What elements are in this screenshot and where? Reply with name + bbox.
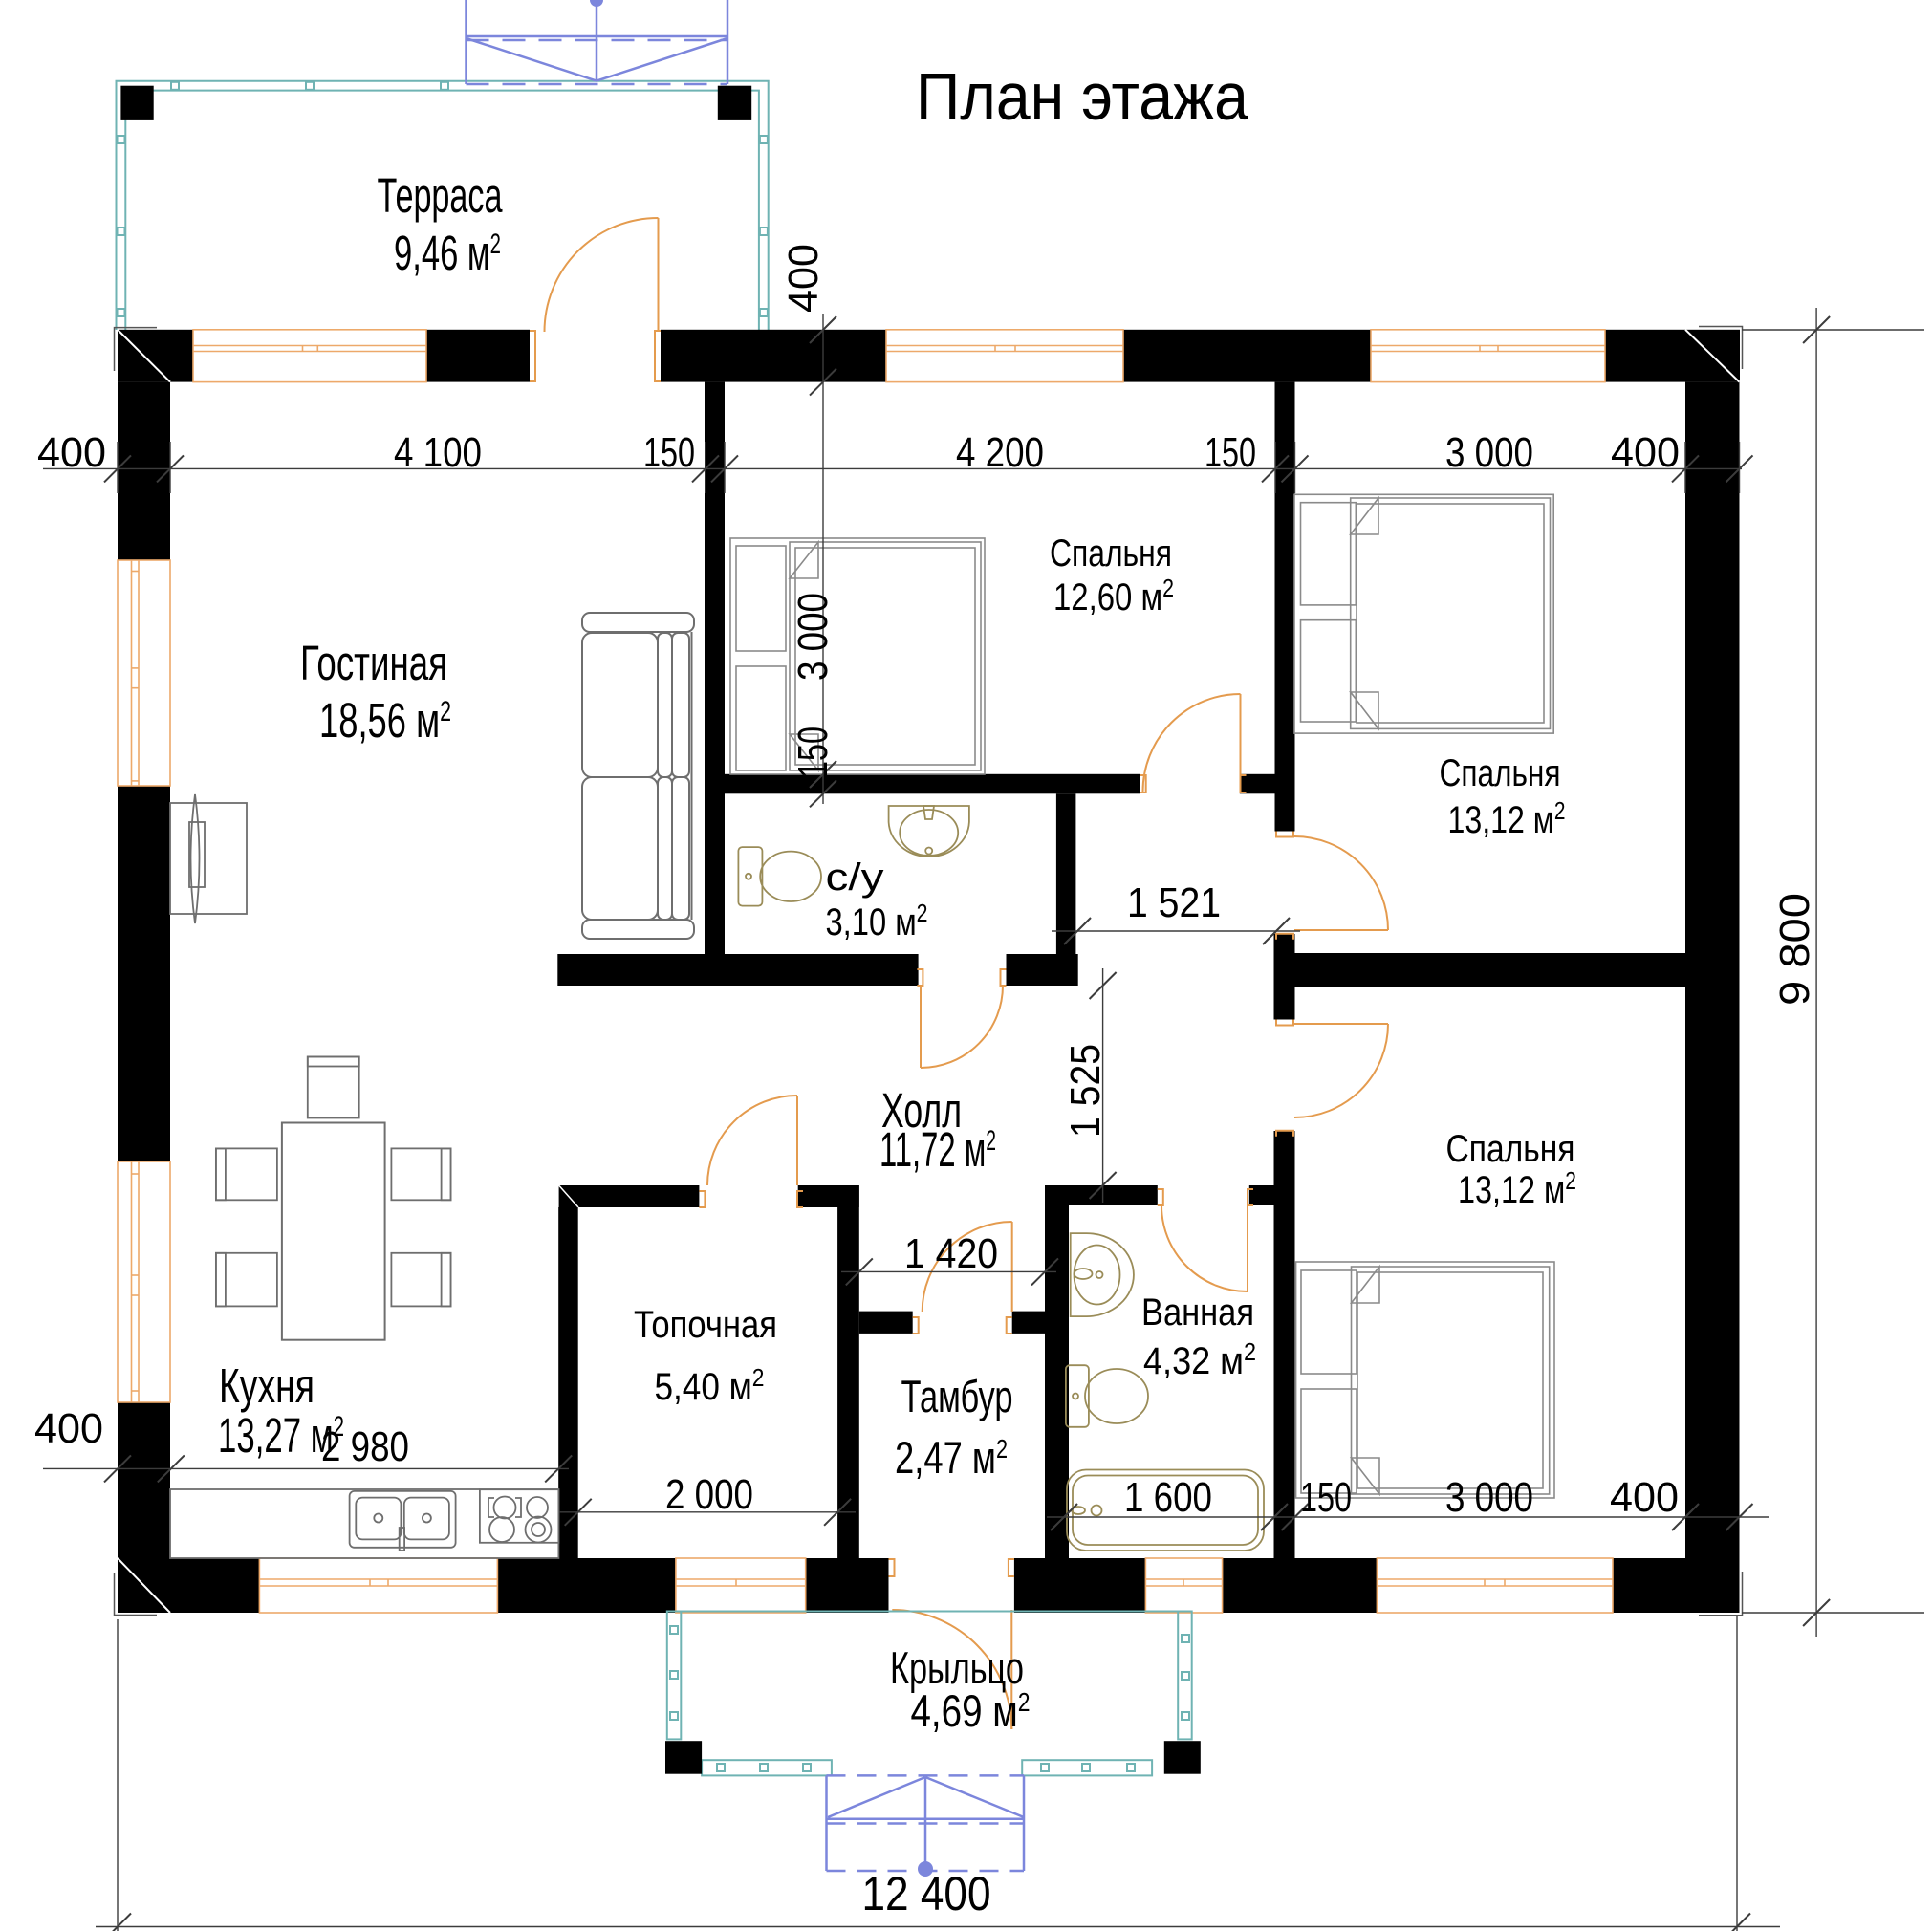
svg-text:Спальня: Спальня <box>1050 532 1172 575</box>
svg-text:2,47 м2: 2,47 м2 <box>895 1432 1008 1483</box>
svg-text:Спальня: Спальня <box>1446 1128 1575 1170</box>
svg-text:3,10 м2: 3,10 м2 <box>826 899 928 944</box>
svg-text:9,46 м2: 9,46 м2 <box>394 226 501 280</box>
svg-text:Кухня: Кухня <box>219 1358 315 1413</box>
svg-text:3 000: 3 000 <box>1445 429 1533 476</box>
svg-text:4,69 м2: 4,69 м2 <box>911 1685 1031 1736</box>
svg-text:3 000: 3 000 <box>790 593 836 681</box>
svg-text:План этажа: План этажа <box>916 59 1248 134</box>
svg-text:Топочная: Топочная <box>634 1304 777 1346</box>
svg-text:400: 400 <box>1611 429 1680 476</box>
svg-text:13,12 м2: 13,12 м2 <box>1448 796 1566 841</box>
svg-text:13,27 м2: 13,27 м2 <box>218 1408 344 1463</box>
svg-text:11,72 м2: 11,72 м2 <box>879 1122 996 1177</box>
svg-text:1 600: 1 600 <box>1124 1474 1212 1521</box>
svg-text:1 525: 1 525 <box>1062 1044 1109 1138</box>
svg-text:13,12 м2: 13,12 м2 <box>1458 1166 1576 1211</box>
svg-text:Тамбур: Тамбур <box>901 1371 1013 1421</box>
svg-text:5,40 м2: 5,40 м2 <box>655 1363 765 1408</box>
svg-text:150: 150 <box>790 727 836 778</box>
svg-text:4,32 м2: 4,32 м2 <box>1143 1337 1256 1382</box>
svg-text:400: 400 <box>34 1405 103 1452</box>
svg-text:150: 150 <box>1205 429 1256 476</box>
svg-text:2 000: 2 000 <box>665 1471 753 1518</box>
svg-text:4 100: 4 100 <box>394 429 482 476</box>
svg-text:1 420: 1 420 <box>904 1230 998 1277</box>
svg-text:400: 400 <box>1610 1474 1679 1521</box>
svg-text:Спальня: Спальня <box>1440 752 1561 794</box>
svg-text:Терраса: Терраса <box>378 168 503 223</box>
svg-text:с/у: с/у <box>826 857 884 899</box>
svg-text:400: 400 <box>37 429 106 476</box>
svg-text:4 200: 4 200 <box>956 429 1044 476</box>
svg-text:150: 150 <box>643 429 695 476</box>
svg-text:3 000: 3 000 <box>1445 1474 1533 1521</box>
svg-text:400: 400 <box>780 244 827 313</box>
svg-text:18,56 м2: 18,56 м2 <box>319 693 451 748</box>
svg-text:150: 150 <box>1300 1474 1352 1521</box>
svg-text:9 800: 9 800 <box>1771 893 1818 1006</box>
svg-text:12,60 м2: 12,60 м2 <box>1053 574 1174 618</box>
svg-text:12 400: 12 400 <box>862 1867 991 1920</box>
svg-text:Гостиная: Гостиная <box>300 636 447 690</box>
svg-text:1 521: 1 521 <box>1127 879 1221 926</box>
svg-text:Ванная: Ванная <box>1141 1291 1254 1334</box>
